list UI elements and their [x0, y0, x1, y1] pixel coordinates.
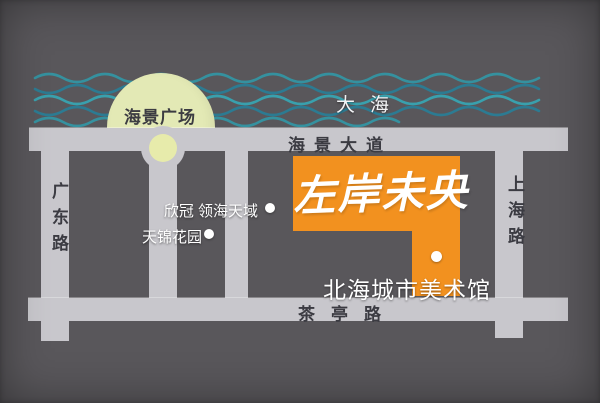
- road-label-guangdong-road: 广东路: [46, 182, 71, 260]
- roundabout-center-icon: [149, 134, 177, 162]
- sea-label: 大海: [336, 90, 404, 117]
- poi-label-tianjin-garden: 天锦花园: [142, 226, 202, 247]
- location-sketch-map: 大海 海景广场 海景大道 茶亭路 广东路 上海路 左岸未央 欣冠 领海天域 天锦…: [0, 0, 600, 403]
- poi-label-art-museum: 北海城市美术馆: [323, 271, 491, 305]
- poi-label-linhai-tianyu: 欣冠 领海天域: [164, 200, 258, 221]
- property-name: 左岸未央: [292, 157, 461, 224]
- poi-dot-linhai-tianyu: [265, 203, 275, 213]
- road-label-shanghai-road: 上海路: [502, 175, 527, 253]
- roundabout-icon: [141, 126, 185, 170]
- poi-dot-tianjin-garden: [204, 229, 214, 239]
- road-label-haijing-avenue: 海景大道: [288, 131, 392, 156]
- seaview-plaza-label: 海景广场: [124, 103, 196, 128]
- poi-dot-art-museum: [431, 251, 442, 262]
